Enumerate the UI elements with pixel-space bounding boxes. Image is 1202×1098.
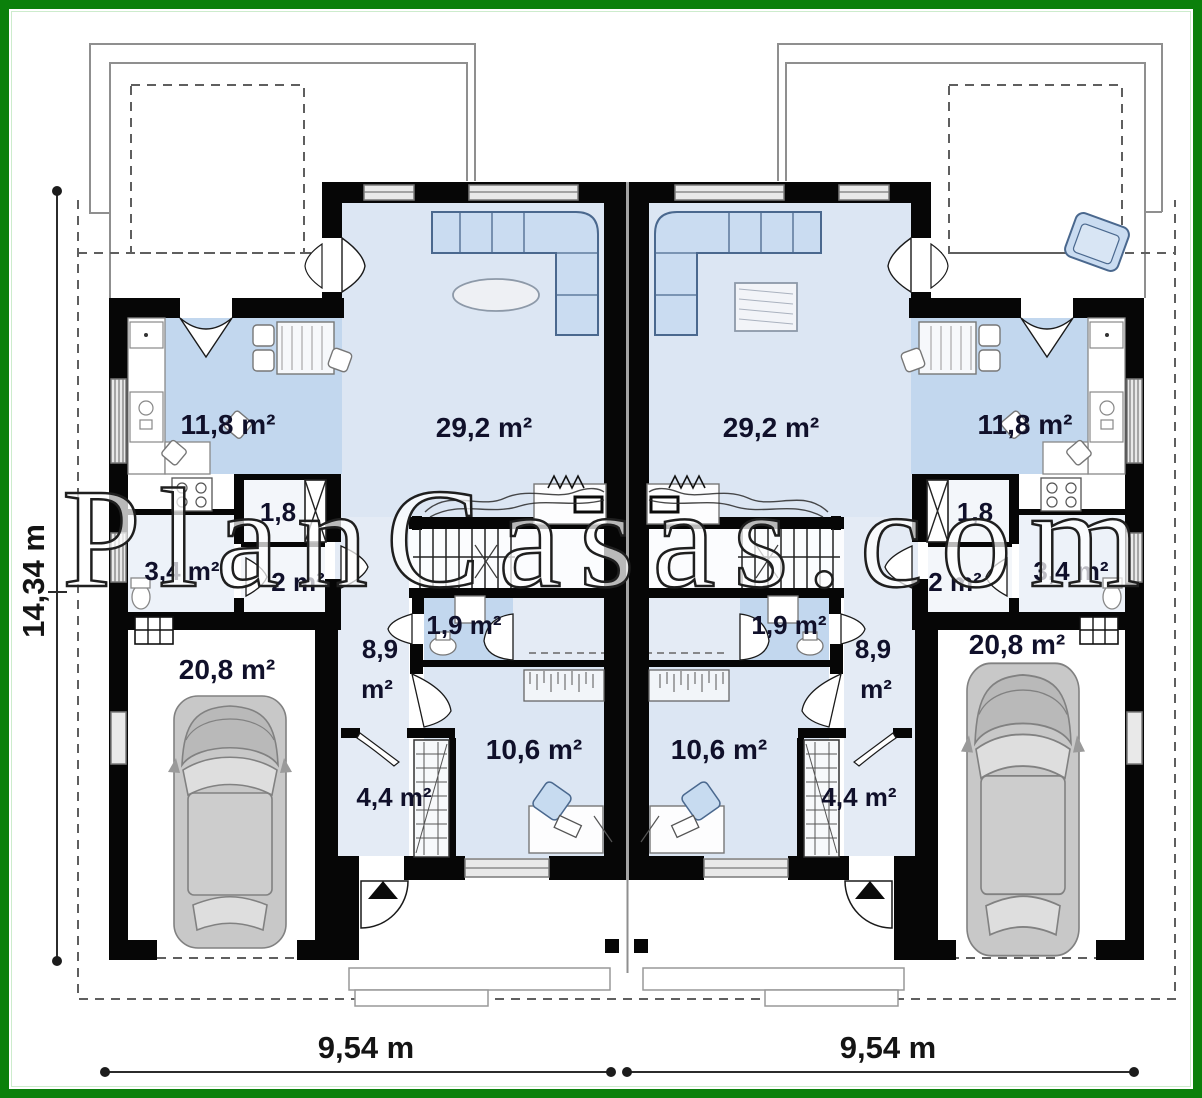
svg-text:10,6 m²: 10,6 m² xyxy=(671,734,768,765)
svg-text:PlanCasas.com: PlanCasas.com xyxy=(62,459,1140,617)
svg-text:29,2 m²: 29,2 m² xyxy=(436,412,533,443)
svg-text:10,6 m²: 10,6 m² xyxy=(486,734,583,765)
svg-text:20,8 m²: 20,8 m² xyxy=(969,629,1066,660)
svg-text:8,9: 8,9 xyxy=(855,634,891,664)
svg-text:8,9: 8,9 xyxy=(362,634,398,664)
svg-text:20,8 m²: 20,8 m² xyxy=(179,654,276,685)
svg-text:14,34 m: 14,34 m xyxy=(16,524,51,638)
svg-text:m²: m² xyxy=(361,674,393,704)
svg-text:11,8 m²: 11,8 m² xyxy=(978,409,1073,440)
svg-text:11,8 m²: 11,8 m² xyxy=(181,409,276,440)
svg-text:9,54 m: 9,54 m xyxy=(840,1030,937,1065)
svg-text:m²: m² xyxy=(860,674,892,704)
svg-text:4,4 m²: 4,4 m² xyxy=(356,782,431,812)
svg-text:9,54 m: 9,54 m xyxy=(318,1030,415,1065)
svg-text:4,4 m²: 4,4 m² xyxy=(821,782,896,812)
svg-text:29,2 m²: 29,2 m² xyxy=(723,412,820,443)
